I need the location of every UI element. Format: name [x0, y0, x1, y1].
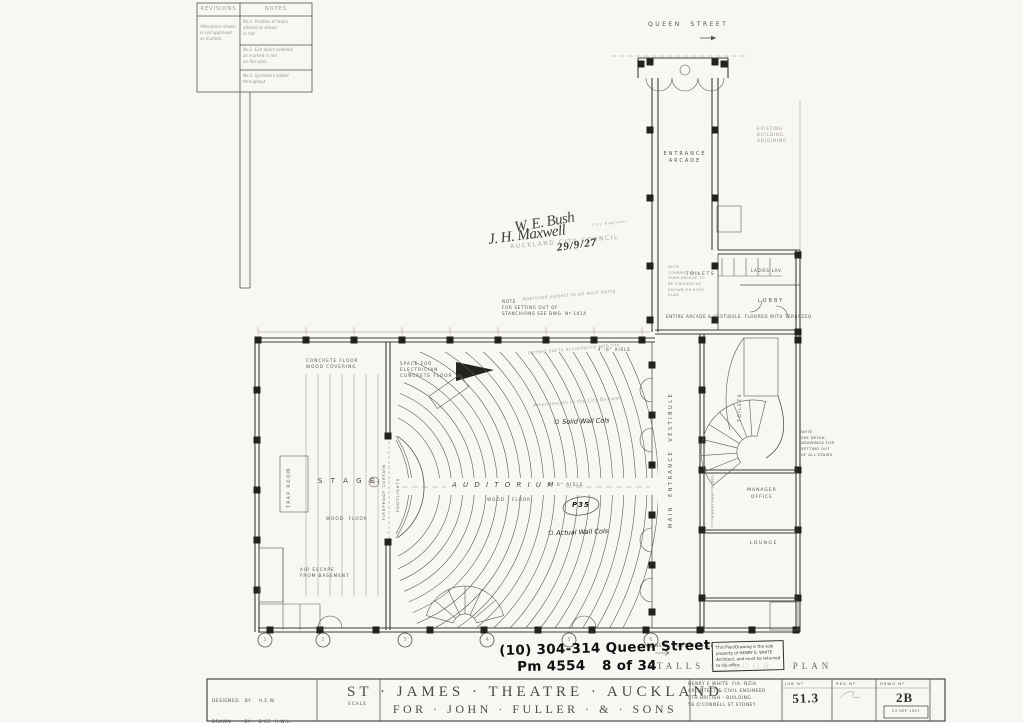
council-stamp-line3: Amendments to the City By-Laws. — [496, 393, 661, 414]
existing-wall-label: EXISTING WALL — [710, 473, 716, 518]
property-stamp: This Plan/Drawing is the sole property o… — [712, 640, 785, 672]
stanchion-note: NOTE FOR SETTING OUT OF STANCHIONS SEE D… — [502, 299, 587, 317]
revision-note-1: No.1 Position of stairs altered as shown… — [243, 19, 288, 36]
handwritten-sheet-number: 8 of 34 — [602, 657, 657, 677]
manager-office-label: MANAGER OFFICE — [747, 488, 777, 501]
revisions-table-lines — [197, 3, 312, 288]
toilets-wing-label: TOILETS — [738, 393, 745, 422]
reg-no-label: REG Nº — [836, 681, 856, 687]
designed-by-row: DESIGNED BY H.E.W. — [212, 698, 291, 705]
grid-bubble-6: 6 — [644, 637, 658, 644]
auditorium-label: A U D I T O R I U M — [452, 480, 555, 490]
actual-cols-note: Actual Wall Cols — [556, 527, 608, 538]
job-no-value: 51.3 — [792, 689, 819, 709]
centre-aisle-label: 4'-0" AISLE — [548, 483, 584, 490]
air-escape-note: AIR ESCAPE FROM BASEMENT — [300, 567, 350, 579]
queen-street-label: QUEEN STREET — [648, 21, 728, 30]
revisions-header: REVISIONS — [197, 6, 240, 13]
vestibule-label: MAIN ENTRANCE VESTIBULE — [668, 392, 675, 528]
top-aisle-label: 4'-6" AISLE — [598, 347, 631, 353]
architect-block: HENRY E WHITE FIA NZIA ARCHITECT & CIVIL… — [688, 682, 766, 710]
stage-floor-label: WOOD FLOOR — [326, 516, 368, 522]
wood-floor-label: WOOD. FLOOR. — [487, 497, 533, 503]
entrance-arcade-label: ENTRANCE ARCADE — [663, 151, 706, 166]
grid-bubble-1: 1 — [258, 637, 272, 644]
existing-building-label: EXISTING BUILDING ADJOINING — [757, 126, 787, 144]
pencil-mark — [840, 692, 860, 698]
drwg-no-label: DRWG Nº — [880, 681, 905, 687]
terrazzo-note: ENTIRE ARCADE & VESTIBULE FLOORED WITH T… — [666, 314, 812, 320]
grid-bubble-5: 5 — [562, 637, 576, 644]
drwg-no-value: 2B — [896, 689, 913, 708]
stage-exit-fan-stair — [426, 586, 503, 623]
solid-cols-note: Solid Wall Cols — [562, 416, 610, 427]
right-wing — [704, 338, 798, 630]
revision-note-2: No.2 Exit doors widened as marked in red… — [243, 47, 293, 64]
electrician-note: SPACE FOR ELECTRICIAN CONCRETE FLOOR — [400, 361, 452, 379]
drawn-by-row: DRAWN BY D'CE H.W.L. — [212, 719, 291, 723]
grid-bubble-4: 4 — [480, 637, 494, 644]
basement-stair-rooms — [259, 548, 320, 630]
sheet-title-line2: FOR · JOHN · FULLER · & · SONS — [393, 701, 677, 718]
lounge-label: LOUNGE — [750, 541, 778, 548]
concrete-floor-note: CONCRETE FLOOR WOOD COVERING — [306, 358, 358, 370]
lobby-label: LOBBY — [758, 298, 784, 305]
handwritten-pm-number: Pm 4554 — [517, 657, 586, 678]
date-stamp: 23 SEP 1927 — [884, 709, 928, 714]
revision-entry: Alterations shown in red approved as mar… — [200, 24, 236, 41]
grid-bubble-2: 2 — [316, 637, 330, 644]
stairs-detail-note: NOTE SEE DETAIL DRAWINGS FOR SETTING OUT… — [801, 429, 834, 457]
job-no-label: JOB Nº — [785, 681, 804, 687]
revision-note-3: No.3 Sprinklers added throughout — [243, 73, 289, 85]
covered-note: NOTE COVERED AREA OVER ARCADE TO BE FINI… — [668, 264, 705, 298]
queen-street-frontage — [612, 36, 748, 91]
drawing-sheet: REVISIONS NOTES Alterations shown in red… — [0, 0, 1023, 723]
grid-bubble-3: 3 — [398, 637, 412, 644]
p35-label: P35 — [572, 500, 590, 510]
fireproof-curtain-label: FIREPROOF CURTAIN — [381, 464, 387, 520]
trap-room-label: TRAP ROOM — [287, 467, 294, 508]
personnel-rows: DESIGNED BY H.E.W. DRAWN BY D'CE H.W.L. … — [212, 683, 291, 723]
ladies-lav-label: LADIES LAV. — [751, 268, 783, 274]
footlights-label: FOOTLIGHTS — [395, 478, 401, 512]
notes-header: NOTES — [240, 6, 312, 13]
stage-label: S T A G E — [318, 476, 377, 486]
council-stamp-line2: carried out in accordance with the — [491, 340, 656, 361]
